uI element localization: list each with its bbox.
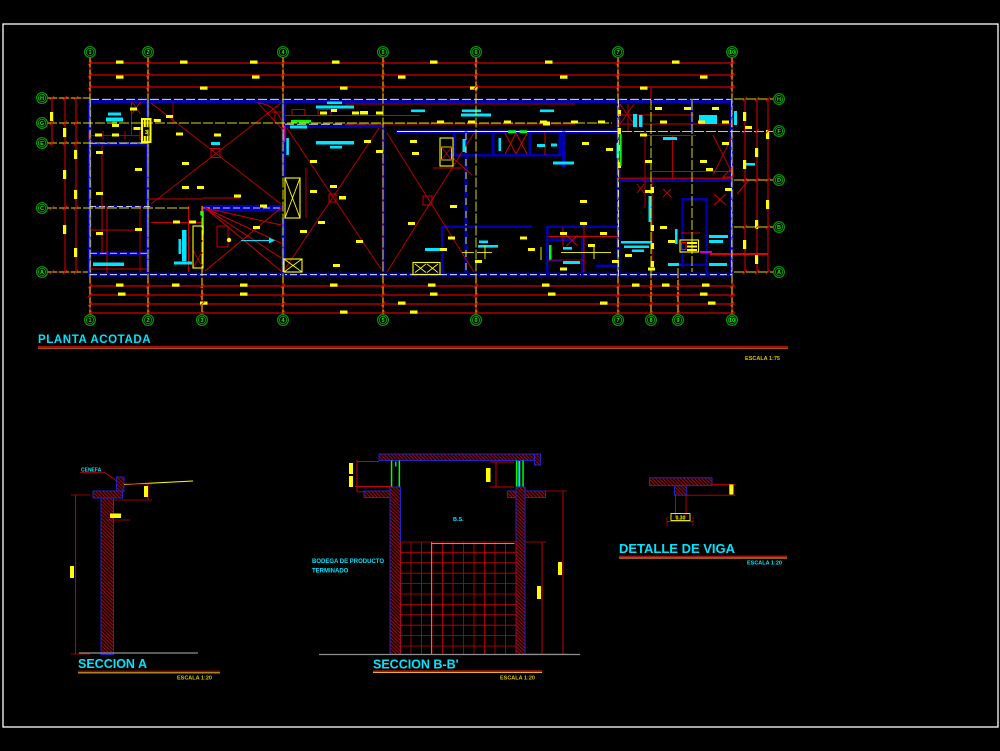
svg-text:3: 3 [200, 318, 203, 324]
svg-text:SECCION A: SECCION A [78, 657, 147, 671]
svg-text:ESCALA 1:75: ESCALA 1:75 [745, 356, 780, 362]
svg-text:6: 6 [474, 318, 477, 324]
svg-text:10: 10 [729, 50, 735, 56]
svg-text:H: H [777, 97, 781, 103]
svg-text:9: 9 [676, 318, 679, 324]
svg-text:2: 2 [146, 50, 149, 56]
svg-text:H: H [40, 96, 44, 102]
svg-text:8: 8 [649, 318, 652, 324]
svg-text:ESCALA 1:20: ESCALA 1:20 [177, 676, 212, 682]
svg-text:3: 3 [145, 130, 148, 136]
svg-text:10: 10 [729, 318, 735, 324]
svg-text:B.S.: B.S. [453, 517, 464, 523]
svg-text:E: E [40, 141, 44, 147]
svg-text:SECCION B-B': SECCION B-B' [373, 658, 459, 672]
svg-text:D: D [777, 178, 781, 184]
svg-text:C: C [40, 206, 44, 212]
svg-text:0.30: 0.30 [676, 515, 686, 521]
svg-text:ESCALA 1:20: ESCALA 1:20 [747, 561, 782, 567]
svg-text:DETALLE DE VIGA: DETALLE DE VIGA [619, 541, 736, 556]
svg-text:BODEGA DE PRODUCTO: BODEGA DE PRODUCTO [312, 559, 384, 565]
svg-text:PLANTA ACOTADA: PLANTA ACOTADA [38, 334, 151, 346]
svg-text:TERMINADO: TERMINADO [312, 569, 349, 575]
svg-text:1: 1 [88, 50, 91, 56]
svg-text:B: B [777, 225, 781, 231]
svg-text:2: 2 [146, 318, 149, 324]
svg-text:5: 5 [381, 50, 384, 56]
svg-text:A: A [777, 270, 781, 276]
svg-text:7: 7 [616, 50, 619, 56]
svg-text:1: 1 [88, 318, 91, 324]
svg-text:7: 7 [616, 318, 619, 324]
svg-text:ESCALA 1:20: ESCALA 1:20 [500, 676, 535, 682]
svg-text:6: 6 [474, 50, 477, 56]
svg-text:A: A [40, 270, 44, 276]
svg-text:G: G [40, 121, 44, 127]
svg-text:5: 5 [381, 318, 384, 324]
